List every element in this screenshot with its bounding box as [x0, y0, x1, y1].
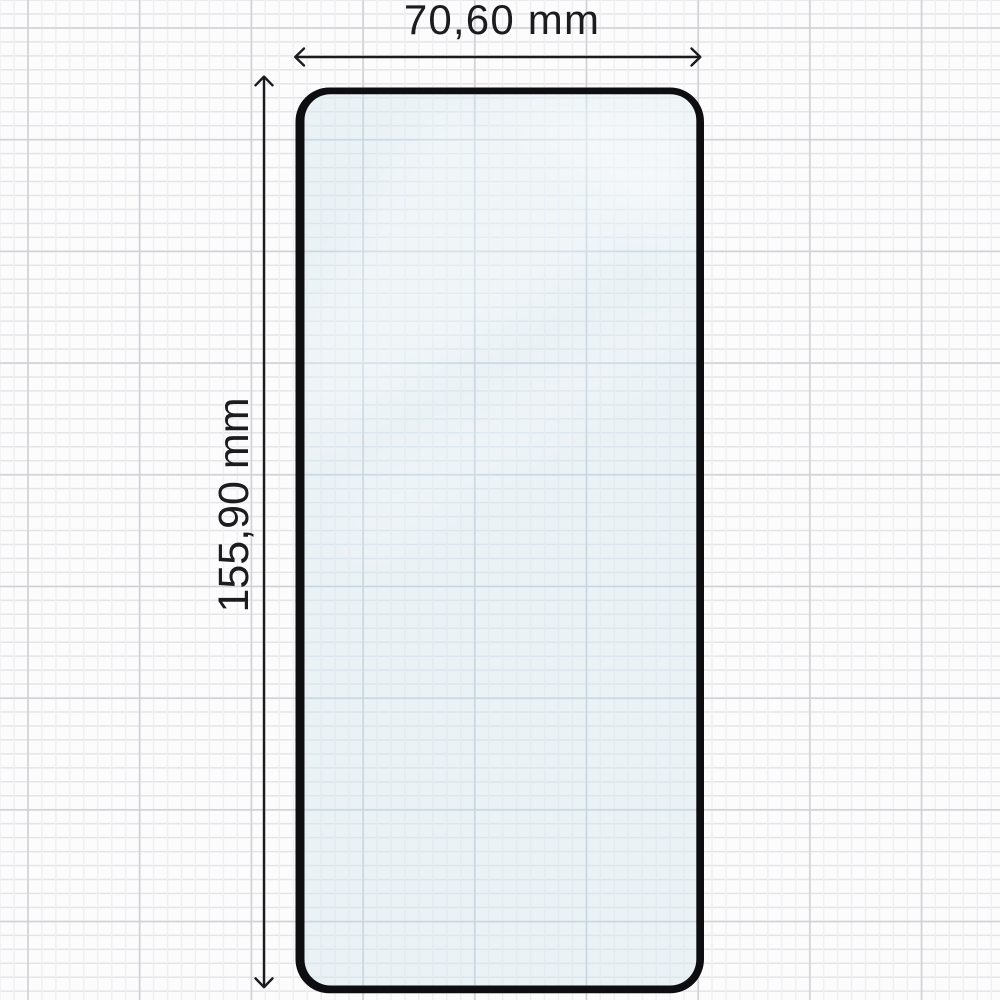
svg-text:155,90 mm: 155,90 mm	[210, 397, 258, 612]
svg-text:70,60 mm: 70,60 mm	[404, 0, 600, 43]
